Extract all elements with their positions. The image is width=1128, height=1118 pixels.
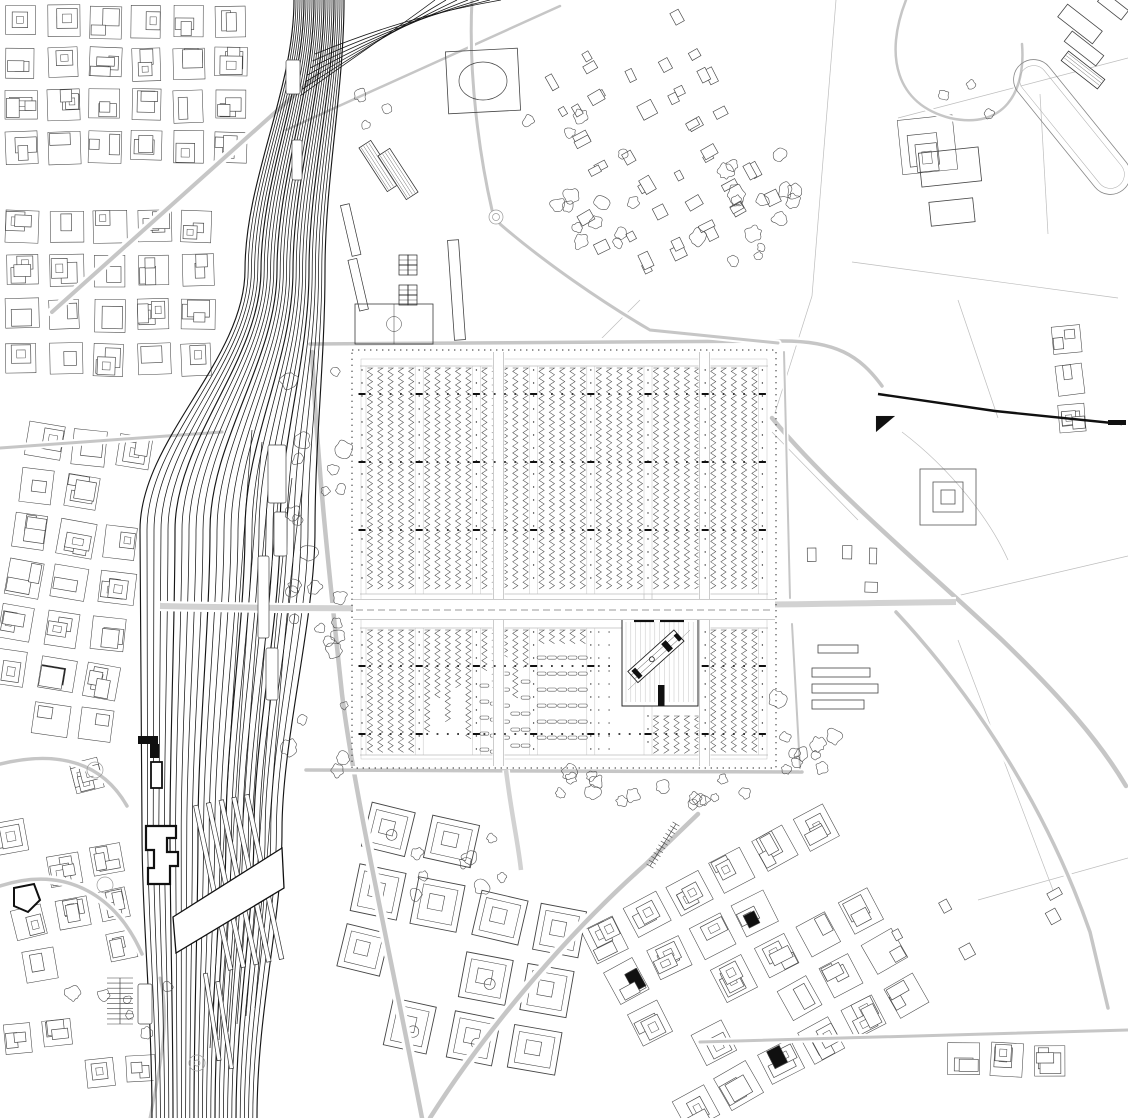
tree bbox=[486, 833, 496, 843]
urban-fabric-layer bbox=[0, 3, 1089, 1118]
tree bbox=[758, 243, 765, 252]
tree bbox=[739, 788, 751, 799]
tree bbox=[97, 990, 110, 1002]
tree bbox=[362, 120, 370, 129]
tree bbox=[294, 432, 309, 449]
tree bbox=[335, 440, 353, 459]
tree bbox=[572, 222, 583, 232]
tree bbox=[745, 225, 762, 242]
concentric-building bbox=[920, 469, 976, 525]
station-building bbox=[146, 826, 178, 884]
tree bbox=[810, 737, 827, 752]
tree bbox=[615, 227, 627, 239]
tree bbox=[555, 787, 565, 798]
tree bbox=[726, 160, 738, 172]
tree bbox=[330, 367, 340, 376]
tree bbox=[827, 728, 843, 745]
tree bbox=[627, 197, 639, 209]
tree bbox=[711, 793, 719, 801]
sports-courts bbox=[399, 255, 417, 275]
platforms bbox=[336, 204, 374, 311]
district bbox=[580, 801, 933, 1118]
hatched-shed bbox=[1061, 51, 1105, 89]
tree bbox=[966, 80, 976, 90]
tree bbox=[616, 795, 628, 806]
tree bbox=[779, 732, 791, 743]
tree bbox=[336, 483, 346, 494]
tree bbox=[300, 546, 318, 561]
railway-layer bbox=[140, 0, 501, 1118]
stadium-oval bbox=[459, 62, 507, 100]
tree bbox=[123, 996, 131, 1003]
district bbox=[947, 1041, 1066, 1079]
station-block bbox=[138, 736, 158, 744]
tree bbox=[769, 689, 787, 708]
district bbox=[0, 421, 157, 745]
station-block bbox=[150, 744, 159, 758]
tree bbox=[411, 848, 424, 860]
site-plan bbox=[0, 0, 1128, 1118]
tree bbox=[141, 1026, 153, 1039]
district bbox=[511, 3, 785, 292]
field-boundaries-layer bbox=[600, 0, 1128, 900]
tree bbox=[816, 761, 828, 774]
football-pitch bbox=[355, 304, 433, 344]
district bbox=[3, 1013, 157, 1094]
tree bbox=[779, 182, 792, 198]
tree bbox=[727, 255, 738, 267]
project-site-layer bbox=[352, 350, 776, 768]
tree bbox=[627, 788, 641, 802]
tree bbox=[382, 104, 392, 114]
district bbox=[0, 756, 144, 984]
tree bbox=[497, 872, 506, 883]
district bbox=[5, 210, 215, 377]
tree bbox=[594, 196, 610, 210]
roads-overlay-layer bbox=[160, 602, 956, 870]
map-canvas bbox=[0, 0, 1128, 1118]
sports-courts bbox=[399, 285, 417, 305]
district bbox=[891, 847, 1074, 996]
tree bbox=[771, 211, 787, 225]
tree bbox=[297, 714, 307, 725]
tree bbox=[550, 199, 565, 212]
tree bbox=[418, 871, 428, 881]
tree bbox=[126, 1010, 134, 1019]
tree bbox=[575, 234, 589, 250]
district bbox=[807, 546, 877, 593]
tree bbox=[328, 465, 340, 476]
tree bbox=[656, 780, 669, 794]
concentric-building bbox=[941, 490, 955, 504]
district bbox=[895, 113, 959, 177]
tree bbox=[522, 115, 534, 127]
tree bbox=[314, 623, 325, 633]
tree bbox=[307, 580, 322, 594]
tree bbox=[938, 90, 948, 100]
station-bar bbox=[151, 762, 162, 788]
heavy-outline-building bbox=[14, 884, 40, 912]
tree bbox=[773, 148, 787, 161]
district bbox=[5, 5, 247, 165]
tree bbox=[64, 986, 81, 1002]
tree bbox=[727, 184, 745, 205]
concentric-building bbox=[933, 482, 963, 512]
tree bbox=[754, 252, 763, 260]
